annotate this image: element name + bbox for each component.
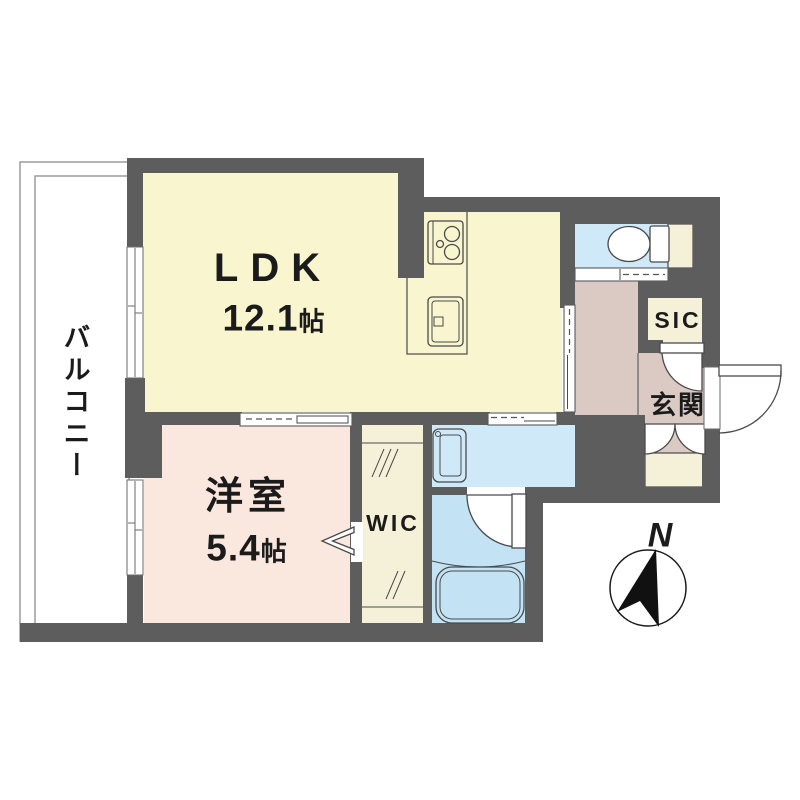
- sic-door-leaf: [660, 343, 704, 353]
- entrance-threshold: [704, 367, 720, 429]
- bedroom-size-label: 5.4帖: [206, 528, 287, 571]
- wall: [693, 224, 702, 268]
- balcony-label: バルコニー: [58, 323, 89, 483]
- bedroom-label: 洋室: [205, 476, 291, 520]
- wall: [20, 623, 543, 642]
- entrance-door-leaf: [719, 365, 781, 376]
- toilet-cabinet: [668, 224, 693, 268]
- wall: [422, 197, 562, 212]
- entrance-door-swing: [719, 371, 781, 433]
- bathroom-door-leaf: [512, 494, 526, 548]
- wall: [560, 212, 575, 308]
- wall: [638, 340, 663, 353]
- ldk-label: LDK: [214, 245, 332, 291]
- sic-label: SIC: [654, 307, 701, 333]
- wall: [638, 280, 648, 342]
- toilet-icon: [608, 226, 669, 262]
- wall: [556, 412, 575, 425]
- wall: [127, 575, 143, 624]
- shoe-cabinet: [645, 453, 705, 487]
- wall: [127, 158, 143, 247]
- north-arrow-icon: [610, 549, 686, 627]
- wall: [432, 487, 467, 495]
- hallway-floor: [575, 281, 638, 415]
- wall: [398, 158, 424, 278]
- wall: [562, 197, 720, 224]
- wall: [423, 412, 432, 642]
- entrance-label: 玄関: [650, 391, 706, 421]
- wall: [525, 487, 720, 503]
- compass-north-label: N: [648, 516, 673, 555]
- wall: [525, 487, 543, 642]
- bedroom-floor: [144, 425, 350, 625]
- wall: [127, 158, 424, 173]
- washroom-sliding-door: [488, 413, 557, 425]
- wall: [575, 415, 645, 487]
- wall: [125, 378, 145, 478]
- wall: [648, 280, 702, 298]
- wall: [352, 412, 490, 425]
- wall: [145, 412, 162, 478]
- wic-label: WIC: [366, 510, 420, 536]
- wall: [702, 197, 720, 368]
- ldk-floor: [143, 173, 424, 412]
- floorplan: LDK 12.1帖 洋室 5.4帖 WIC SIC 玄関 バルコニー N: [0, 0, 800, 800]
- ldk-size-label: 12.1帖: [222, 298, 325, 341]
